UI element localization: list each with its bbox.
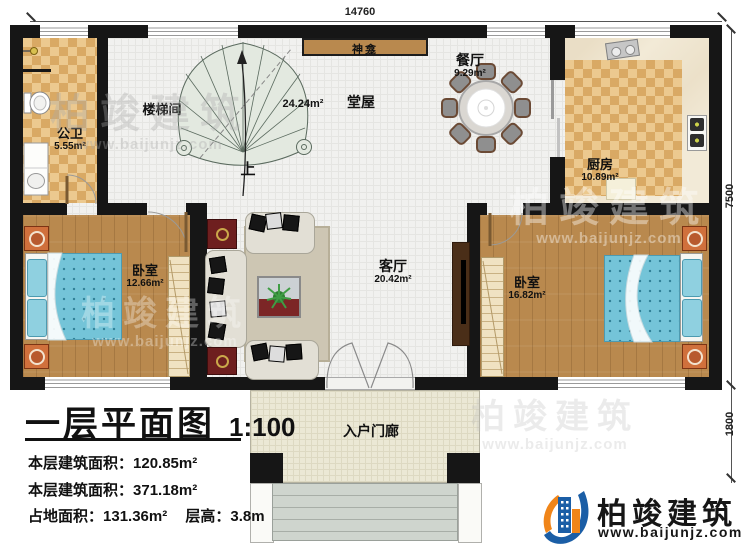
stairs-up-label: 上 <box>238 158 258 179</box>
dimension-right-upper-label: 7500 <box>724 174 736 218</box>
toilet <box>24 92 50 114</box>
title-underline <box>25 438 241 441</box>
stat-line-1: 本层建筑面积：120.85m² <box>28 452 197 473</box>
door-bedroom-left <box>148 212 187 252</box>
stat-line-3: 占地面积：131.36m² 层高：3.8m <box>28 505 265 526</box>
bed-left-sheet <box>48 253 66 340</box>
room-label-kitchen: 厨房 10.89m² <box>565 158 635 183</box>
room-label-dining: 餐厅 9.29m² <box>430 52 510 79</box>
room-label-bathroom: 公卫 5.55m² <box>40 127 100 152</box>
plant <box>267 284 291 308</box>
stat-line-2: 本层建筑面积：371.18m² <box>28 479 197 500</box>
floor-plan-page: 神龛 <box>0 0 750 554</box>
brand-logo-icon <box>538 487 592 545</box>
room-label-bedroom-left: 卧室 12.66m² <box>110 264 180 289</box>
dimension-top-label: 14760 <box>336 6 384 18</box>
door-bathroom <box>67 175 96 204</box>
room-label-living: 客厅 20.42m² <box>355 258 431 285</box>
door-bedroom-right <box>490 213 522 246</box>
room-label-bedroom-right: 卧室 16.82m² <box>492 276 562 301</box>
room-label-stairwell: 楼梯间 <box>122 103 202 117</box>
hall-area-label: 24.24m² <box>277 99 329 110</box>
entry-double-door <box>327 343 413 388</box>
dimension-line-top <box>30 21 722 22</box>
bed-right-sheet <box>626 255 652 342</box>
faucet <box>23 48 38 55</box>
dimension-right-lower-label: 1800 <box>724 402 736 446</box>
room-label-porch: 入户门廊 <box>320 424 422 438</box>
brand-website: www.baijunjz.com <box>598 524 743 540</box>
hall-name-label: 堂屋 <box>341 95 381 109</box>
